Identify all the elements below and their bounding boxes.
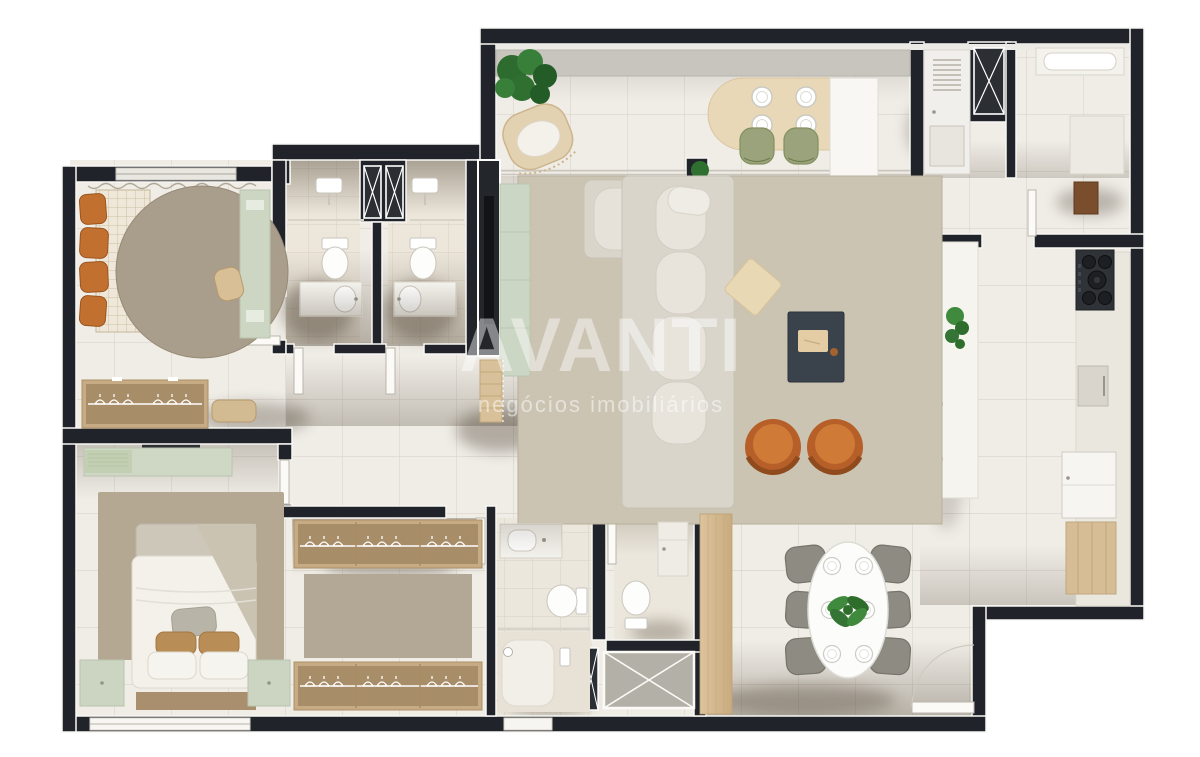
desk — [240, 190, 270, 338]
living-room — [478, 160, 942, 524]
master-desk — [84, 448, 232, 476]
floor-plan-screenshot: AVANTI negócios imobiliários — [0, 0, 1200, 757]
wall-closet-top — [278, 506, 446, 518]
pillar — [830, 78, 878, 176]
closet-rug — [304, 574, 472, 658]
orange-armchair-2 — [807, 419, 863, 475]
wardrobe — [82, 377, 208, 428]
closet-wardrobe-top — [294, 520, 482, 568]
built-in-cabinet — [1078, 366, 1108, 406]
shaft-service — [974, 48, 1004, 114]
vanity-sink — [300, 282, 362, 316]
closet-wardrobe-bottom — [294, 662, 482, 710]
wall-service-left — [910, 42, 924, 178]
orange-armchair-1 — [745, 419, 801, 475]
entry-hall — [700, 514, 732, 714]
walk-in-closet — [294, 520, 482, 710]
pantry-cabinet — [1066, 522, 1116, 594]
toilet — [622, 581, 650, 629]
door-bathroom1 — [294, 348, 303, 394]
window-master-bathroom — [504, 718, 552, 730]
wall-top — [480, 28, 1144, 44]
utility-sink — [1036, 48, 1124, 75]
bench — [212, 400, 256, 422]
vanity-sink — [394, 282, 456, 316]
dining-area — [784, 542, 912, 678]
planter-hedge — [496, 50, 910, 76]
green-sideboard — [500, 184, 530, 376]
door-service — [1028, 190, 1036, 236]
refrigerator — [1062, 452, 1116, 518]
vanity-sink — [500, 524, 562, 558]
shaft-entry-large — [604, 652, 694, 708]
shower-area — [498, 632, 590, 712]
notebook — [798, 330, 828, 352]
door-entrance — [912, 702, 974, 713]
double-bed — [132, 524, 256, 710]
toilet — [410, 238, 436, 279]
wall-right — [1130, 28, 1144, 620]
terrace-parapet-line — [496, 44, 1130, 50]
wall-left — [62, 166, 76, 732]
wall-top-bathrooms — [272, 144, 496, 160]
tv-feature-panel — [478, 160, 500, 356]
toilet — [547, 585, 587, 617]
wall-step-horizontal — [972, 606, 1144, 620]
floor-plan-rendering — [0, 0, 1200, 757]
shaft-bathrooms-2 — [386, 166, 403, 218]
service-counter — [1070, 116, 1124, 174]
washer-tower — [924, 50, 970, 174]
coffee-table — [788, 312, 844, 382]
tall-cabinet — [658, 522, 688, 576]
cooktop — [1076, 250, 1114, 310]
door-bathroom2 — [386, 348, 395, 394]
wall-bedroom-divider — [62, 428, 292, 444]
wall-terrace-left — [480, 28, 496, 168]
headboard — [136, 692, 256, 710]
toilet — [322, 238, 348, 279]
decor-ladder — [480, 360, 503, 422]
tv-screen — [484, 196, 494, 324]
shaft-bathrooms-1 — [364, 166, 381, 218]
water-heater — [1074, 182, 1098, 214]
